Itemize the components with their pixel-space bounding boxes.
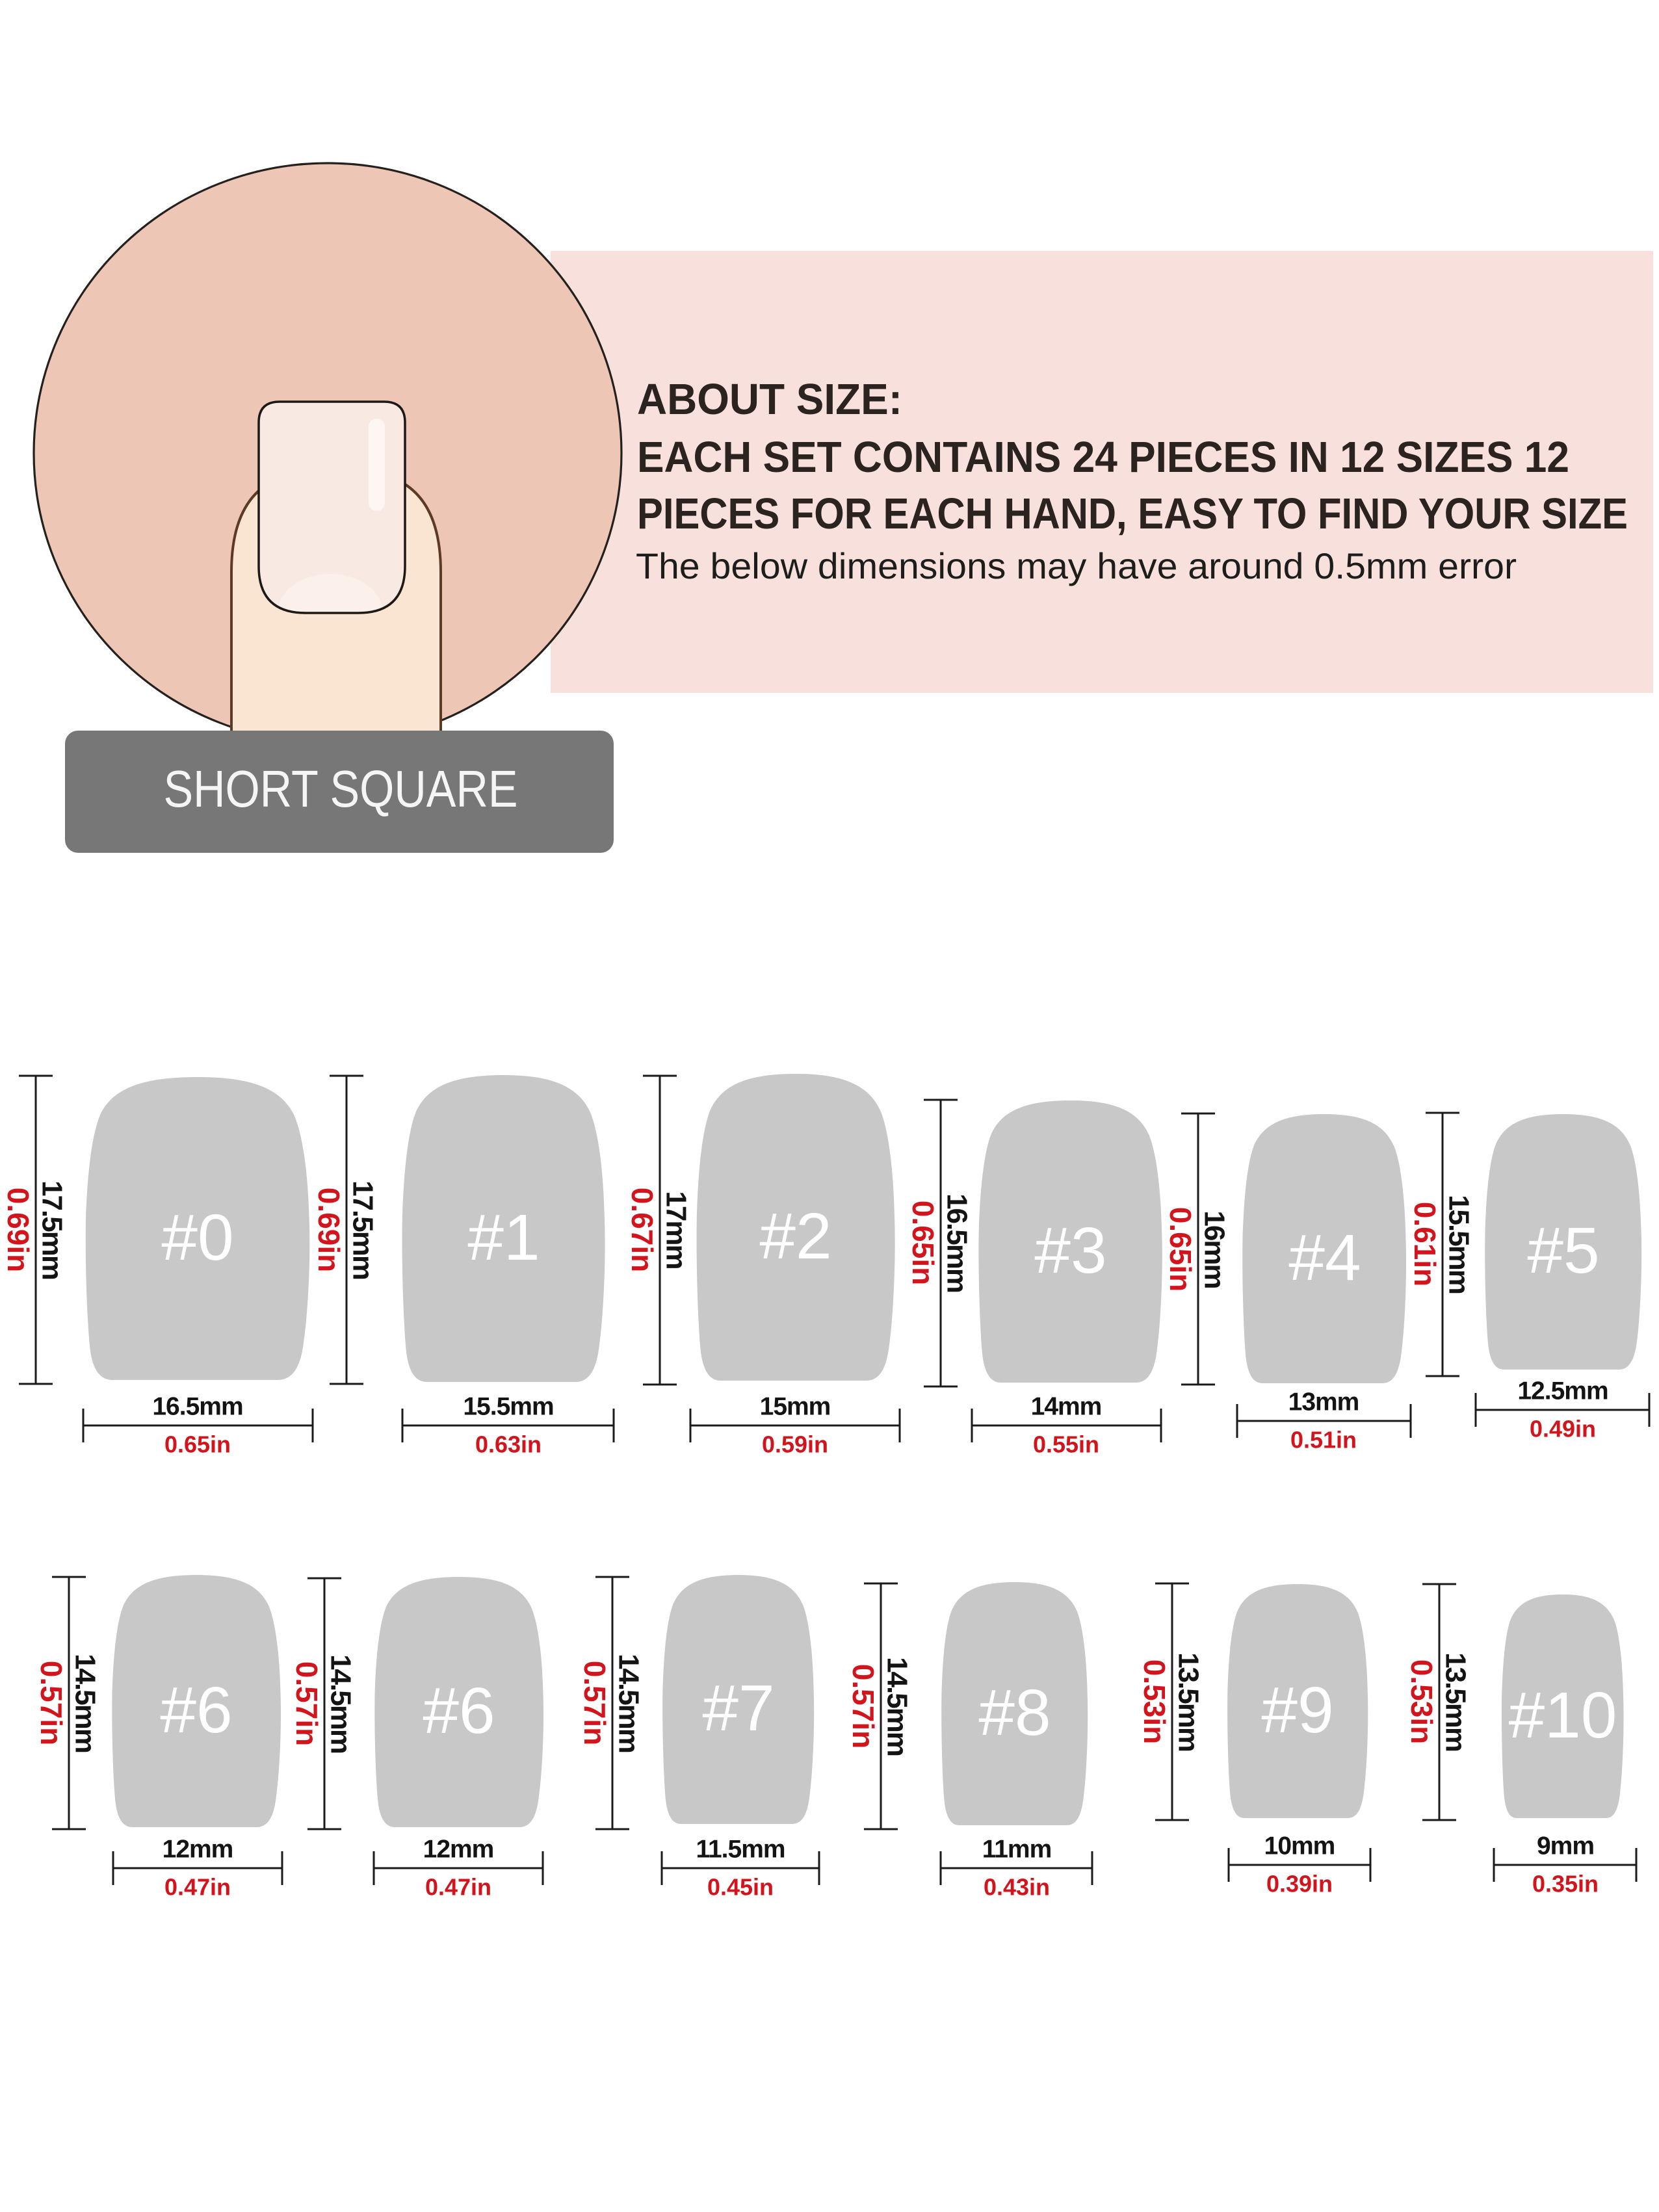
svg-text:12.5mm: 12.5mm — [1517, 1377, 1608, 1405]
svg-text:#0: #0 — [161, 1201, 233, 1274]
svg-text:12mm: 12mm — [163, 1836, 233, 1864]
svg-text:#10: #10 — [1509, 1679, 1617, 1752]
svg-text:14.5mm: 14.5mm — [70, 1654, 101, 1752]
svg-text:#3: #3 — [1034, 1214, 1106, 1287]
svg-text:#1: #1 — [467, 1201, 540, 1274]
svg-text:0.51in: 0.51in — [1290, 1427, 1357, 1453]
svg-text:EACH SET CONTAINS 24 PIECES IN: EACH SET CONTAINS 24 PIECES IN 12 SIZES … — [637, 433, 1569, 482]
svg-text:13mm: 13mm — [1288, 1388, 1359, 1416]
svg-text:#9: #9 — [1261, 1674, 1333, 1747]
svg-text:13.5mm: 13.5mm — [1440, 1652, 1472, 1751]
svg-text:0.53in: 0.53in — [1405, 1659, 1439, 1744]
svg-text:0.69in: 0.69in — [312, 1188, 346, 1272]
svg-text:ABOUT SIZE:: ABOUT SIZE: — [637, 375, 902, 424]
svg-text:14.5mm: 14.5mm — [613, 1654, 645, 1752]
svg-text:0.45in: 0.45in — [707, 1874, 774, 1901]
svg-text:#6: #6 — [160, 1674, 232, 1747]
svg-text:0.39in: 0.39in — [1266, 1871, 1333, 1897]
svg-text:The below dimensions may have: The below dimensions may have around 0.5… — [636, 545, 1517, 586]
svg-text:10mm: 10mm — [1264, 1832, 1335, 1860]
svg-text:15.5mm: 15.5mm — [463, 1393, 553, 1421]
svg-text:PIECES FOR EACH HAND, EASY TO: PIECES FOR EACH HAND, EASY TO FIND YOUR … — [637, 489, 1628, 538]
svg-text:#8: #8 — [978, 1676, 1051, 1749]
svg-text:16.5mm: 16.5mm — [941, 1193, 973, 1292]
svg-text:17.5mm: 17.5mm — [36, 1180, 68, 1279]
svg-text:0.67in: 0.67in — [625, 1188, 659, 1272]
svg-text:#2: #2 — [759, 1200, 831, 1273]
svg-text:0.57in: 0.57in — [34, 1661, 68, 1745]
svg-text:0.59in: 0.59in — [762, 1431, 828, 1458]
svg-text:16.5mm: 16.5mm — [152, 1393, 242, 1421]
svg-text:0.65in: 0.65in — [906, 1201, 940, 1285]
svg-text:0.57in: 0.57in — [290, 1661, 324, 1746]
svg-text:0.47in: 0.47in — [425, 1874, 491, 1901]
svg-text:0.55in: 0.55in — [1033, 1431, 1099, 1458]
svg-text:#4: #4 — [1288, 1221, 1361, 1294]
svg-text:14mm: 14mm — [1031, 1393, 1102, 1421]
svg-text:0.35in: 0.35in — [1532, 1871, 1599, 1897]
svg-text:0.65in: 0.65in — [1164, 1207, 1197, 1292]
svg-text:15.5mm: 15.5mm — [1443, 1195, 1475, 1294]
svg-text:17.5mm: 17.5mm — [347, 1180, 379, 1279]
svg-text:0.63in: 0.63in — [475, 1431, 542, 1458]
svg-text:12mm: 12mm — [423, 1836, 494, 1864]
svg-text:SHORT SQUARE: SHORT SQUARE — [164, 760, 518, 818]
svg-text:0.53in: 0.53in — [1138, 1659, 1171, 1744]
svg-text:15mm: 15mm — [760, 1393, 831, 1421]
svg-text:14.5mm: 14.5mm — [325, 1654, 357, 1753]
svg-text:9mm: 9mm — [1537, 1832, 1594, 1860]
svg-text:0.61in: 0.61in — [1408, 1202, 1442, 1286]
svg-text:#5: #5 — [1527, 1214, 1599, 1287]
svg-text:#7: #7 — [702, 1672, 774, 1745]
svg-text:0.65in: 0.65in — [164, 1431, 231, 1458]
svg-text:0.43in: 0.43in — [984, 1874, 1050, 1901]
svg-text:14.5mm: 14.5mm — [882, 1657, 913, 1756]
svg-text:0.69in: 0.69in — [1, 1188, 35, 1272]
svg-text:0.57in: 0.57in — [846, 1664, 880, 1749]
svg-text:0.49in: 0.49in — [1530, 1416, 1596, 1442]
svg-text:0.57in: 0.57in — [578, 1661, 612, 1745]
svg-text:11mm: 11mm — [982, 1836, 1052, 1864]
svg-text:0.47in: 0.47in — [164, 1874, 231, 1901]
svg-text:11.5mm: 11.5mm — [696, 1836, 785, 1864]
svg-text:17mm: 17mm — [660, 1191, 692, 1268]
svg-text:13.5mm: 13.5mm — [1173, 1652, 1205, 1751]
svg-text:16mm: 16mm — [1199, 1210, 1231, 1288]
svg-text:#6: #6 — [423, 1674, 495, 1747]
